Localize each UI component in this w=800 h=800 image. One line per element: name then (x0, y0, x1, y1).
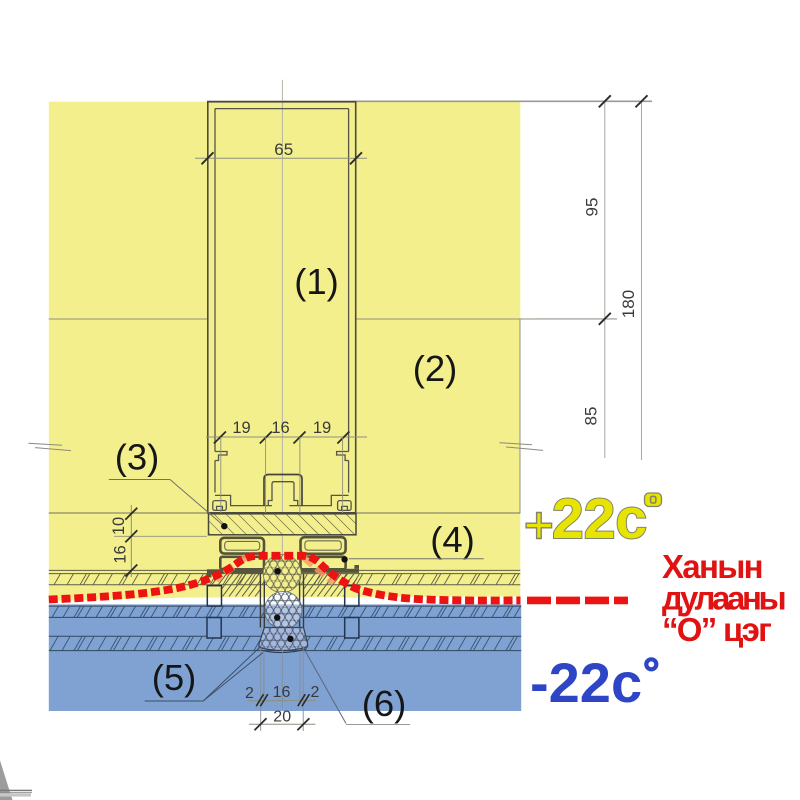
svg-text:(6): (6) (362, 683, 407, 724)
svg-text:16: 16 (112, 545, 130, 563)
svg-text:19: 19 (232, 419, 250, 437)
svg-text:95: 95 (583, 198, 602, 217)
svg-text:(4): (4) (430, 519, 475, 560)
svg-text:180: 180 (619, 290, 638, 318)
svg-text:(2): (2) (413, 348, 458, 389)
svg-text:10: 10 (110, 517, 128, 535)
svg-text:16: 16 (273, 684, 291, 701)
svg-text:(1): (1) (294, 261, 339, 302)
svg-text:(5): (5) (152, 657, 197, 698)
svg-text:22c: 22c (552, 487, 647, 551)
svg-text:16: 16 (271, 419, 289, 437)
svg-text:-22c: -22c (530, 651, 642, 714)
svg-text:19: 19 (313, 419, 331, 437)
svg-text:65: 65 (274, 140, 293, 159)
svg-text:“О” цэг: “О” цэг (662, 611, 771, 648)
svg-text:(3): (3) (115, 437, 160, 478)
svg-text:2: 2 (245, 685, 254, 702)
svg-text:85: 85 (582, 407, 601, 426)
svg-text:20: 20 (273, 709, 291, 726)
svg-text:2: 2 (310, 684, 319, 701)
